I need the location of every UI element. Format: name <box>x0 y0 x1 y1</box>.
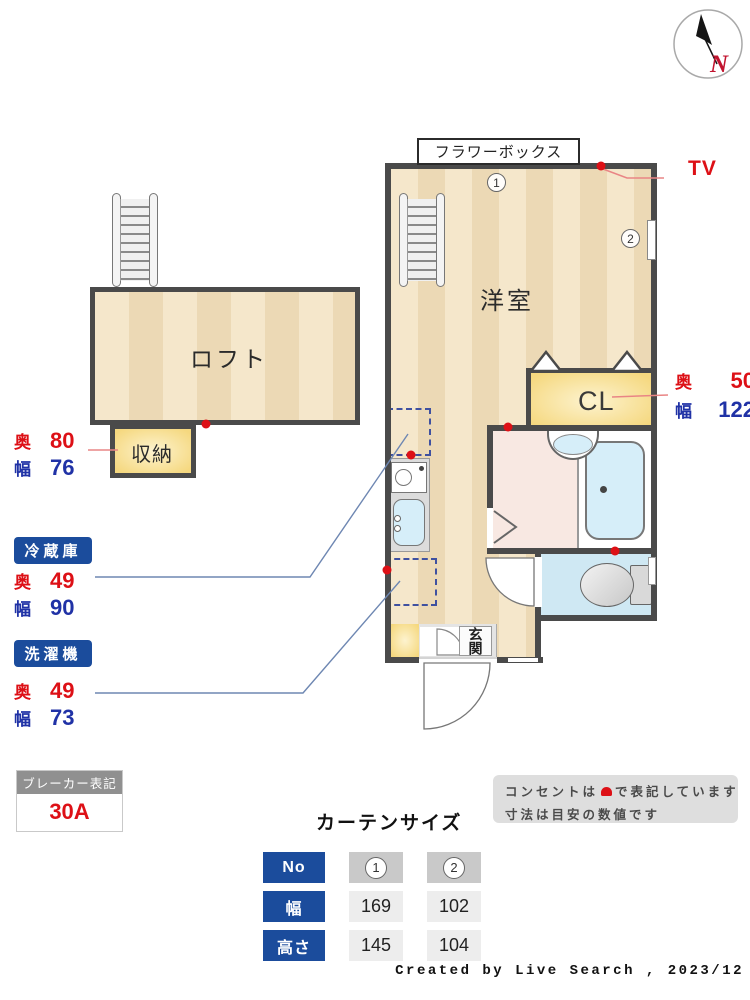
washer-badge: 洗濯機 <box>14 640 92 667</box>
wall-bath-left <box>487 425 493 554</box>
fridge-depth-row: 奥49 <box>14 568 80 594</box>
storage-depth-row: 奥80 <box>14 428 80 454</box>
compass: N <box>672 8 744 80</box>
notice-box: コンセントはで表記しています 寸法は目安の数値です <box>493 775 738 823</box>
curtain-col2-no: 2 <box>427 852 481 883</box>
breaker-value: 30A <box>17 794 122 831</box>
washer-space-dashed <box>385 558 437 606</box>
outlet-legend-icon <box>601 787 612 796</box>
kitchen-faucet <box>394 515 401 522</box>
wall-toilet-left <box>535 548 541 663</box>
wall-left <box>385 163 391 663</box>
curtain-table-title: カーテンサイズ <box>316 808 462 835</box>
window-2 <box>647 220 656 260</box>
toilet-bowl <box>580 563 634 607</box>
wall-bottom <box>385 657 543 663</box>
curtain-tag-2: 2 <box>621 229 640 248</box>
curtain-row-header-width: 幅 <box>263 891 325 922</box>
tv-label: TV <box>688 157 717 181</box>
compass-north-label: N <box>709 51 729 78</box>
closet-label: CL <box>578 386 615 417</box>
curtain-row-header-height: 高さ <box>263 930 325 961</box>
storage-width-row: 幅76 <box>14 455 80 481</box>
bathtub-drain <box>600 486 607 493</box>
notice-line-1: コンセントはで表記しています <box>505 781 726 804</box>
curtain-row-header-no: No <box>263 852 325 883</box>
closet-width-row: 幅122 <box>675 397 750 423</box>
kitchen-faucet-2 <box>394 525 401 532</box>
fridge-badge: 冷蔵庫 <box>14 537 92 564</box>
curtain-col2-height: 104 <box>427 930 481 961</box>
loft-ladder <box>112 193 158 287</box>
curtain-col1-height: 145 <box>349 930 403 961</box>
entrance-door-swing <box>424 663 490 729</box>
living-room-label: 洋室 <box>480 281 534 316</box>
toilet-window <box>648 557 656 585</box>
curtain-tag-1: 1 <box>487 173 506 192</box>
wall-closet-left <box>526 368 531 431</box>
curtain-col2-width: 102 <box>427 891 481 922</box>
loft-label: ロフト <box>190 340 268 374</box>
wall-bath-top <box>487 425 657 431</box>
curtain-table: No 1 2 幅 169 102 高さ 145 104 <box>263 852 481 961</box>
wash-basin-bowl <box>553 434 593 455</box>
curtain-col1-no: 1 <box>349 852 403 883</box>
bathtub <box>585 441 645 540</box>
breaker-box: ブレーカー表記 30A <box>16 770 123 832</box>
washer-width-row: 幅73 <box>14 705 80 731</box>
fridge-space-dashed <box>387 408 431 456</box>
fridge-width-row: 幅90 <box>14 595 80 621</box>
flower-box: フラワーボックス <box>417 138 580 165</box>
wall-toilet-bottom <box>537 615 657 621</box>
entrance-label: 玄関 <box>469 627 483 655</box>
breaker-title: ブレーカー表記 <box>17 771 122 794</box>
storage-label: 収納 <box>131 438 173 467</box>
entrance-label-box: 玄関 <box>459 626 492 656</box>
notice-line-2: 寸法は目安の数値です <box>505 804 726 827</box>
wall-bath-bottom <box>487 548 657 554</box>
main-room-ladder <box>399 193 445 287</box>
wall-closet-top <box>526 368 657 373</box>
washer-leader-line <box>95 581 400 693</box>
stove-burner <box>395 469 412 486</box>
floorplan-page: フラワーボックス TV 洋室 ロフト 収納 CL 玄関 1 2 奥80 幅76 … <box>0 0 750 1000</box>
curtain-col1-width: 169 <box>349 891 403 922</box>
washer-depth-row: 奥49 <box>14 678 80 704</box>
stove-knob <box>419 466 424 471</box>
closet-depth-row: 奥50 <box>675 368 750 394</box>
credit-text: Created by Live Search , 2023/12 <box>395 963 744 979</box>
kitchen-sink <box>393 499 425 546</box>
shoe-cabinet <box>391 624 419 657</box>
